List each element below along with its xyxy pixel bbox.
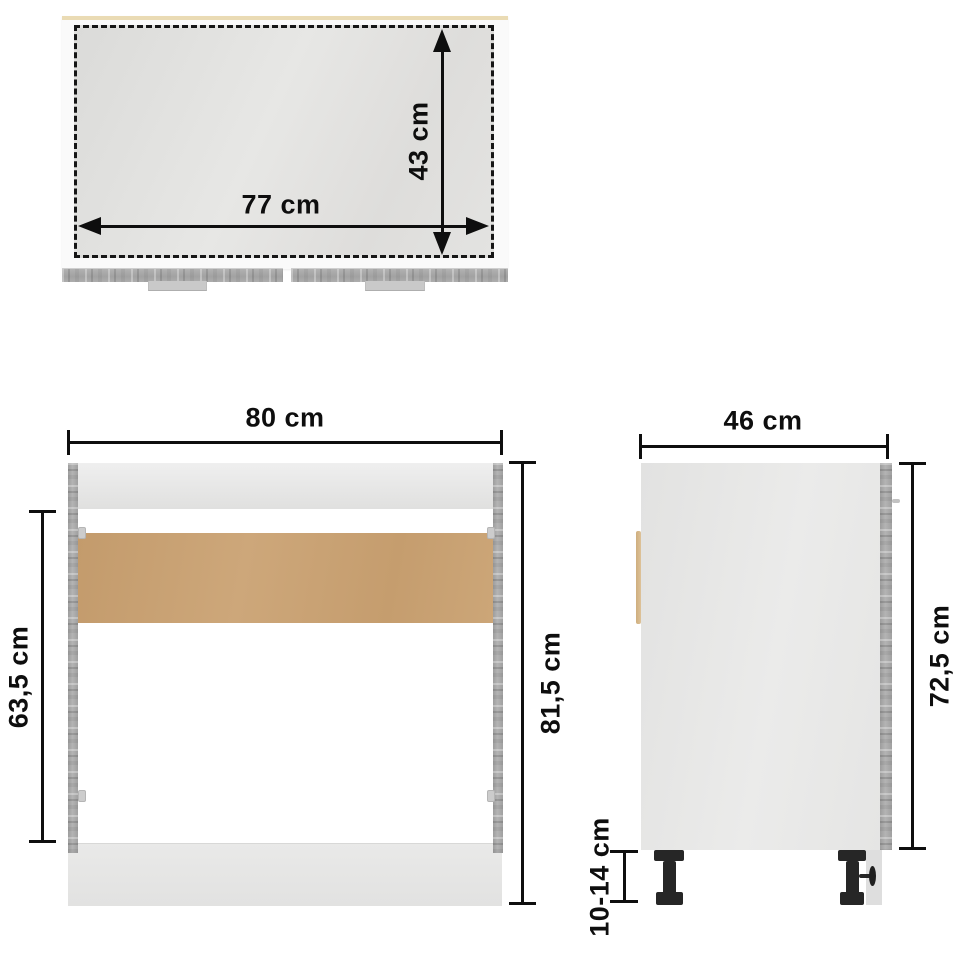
panel-clip <box>78 527 86 539</box>
dimension-line <box>623 850 626 903</box>
side-back-panel-edge <box>880 463 892 850</box>
arrowhead-right-icon <box>466 217 489 235</box>
leg-top-flange <box>838 850 866 861</box>
front-opening-height-label: 63,5 cm <box>6 626 33 729</box>
arrowhead-up-icon <box>433 29 451 52</box>
panel-clip <box>78 790 86 802</box>
dimension-line <box>639 445 889 448</box>
dimension-line <box>441 44 444 240</box>
panel-clip <box>487 790 495 802</box>
arrowhead-left-icon <box>78 217 101 235</box>
panel-clip <box>487 527 495 539</box>
dimension-line <box>92 225 470 228</box>
front-mdf-panel <box>78 533 493 623</box>
top-width-label: 77 cm <box>241 192 320 219</box>
side-leg-height-label: 10-14 cm <box>587 817 614 937</box>
side-door-panel <box>641 463 880 850</box>
arrowhead-down-icon <box>433 232 451 255</box>
dimension-line <box>67 441 503 444</box>
front-side-panel-left <box>68 463 78 853</box>
leg-stem <box>663 861 676 894</box>
side-body-height-label: 72,5 cm <box>927 605 954 708</box>
wall-fixing-pin <box>892 499 900 503</box>
door-handle <box>636 531 641 624</box>
leg-foot <box>840 892 864 905</box>
mounting-tab-left <box>148 281 207 291</box>
mounting-tab-right <box>365 281 425 291</box>
countertop-edge <box>62 16 508 20</box>
leg-foot <box>656 892 683 905</box>
front-total-height-label: 81,5 cm <box>538 632 565 735</box>
top-depth-label: 43 cm <box>406 101 433 180</box>
dimension-line <box>521 461 524 905</box>
dimension-diagram: 77 cm 43 cm 80 cm <box>0 0 955 955</box>
leg-stem <box>846 861 859 894</box>
top-back-rail-right <box>291 268 508 282</box>
top-back-rail-left <box>62 268 283 282</box>
front-width-label: 80 cm <box>245 405 324 432</box>
front-top-rail <box>68 463 503 509</box>
dimension-line <box>911 462 914 850</box>
leg-adjuster-knob <box>869 866 876 886</box>
front-base-panel <box>68 843 502 906</box>
dimension-line <box>41 510 44 843</box>
leg-top-flange <box>654 850 684 861</box>
side-depth-label: 46 cm <box>723 408 802 435</box>
